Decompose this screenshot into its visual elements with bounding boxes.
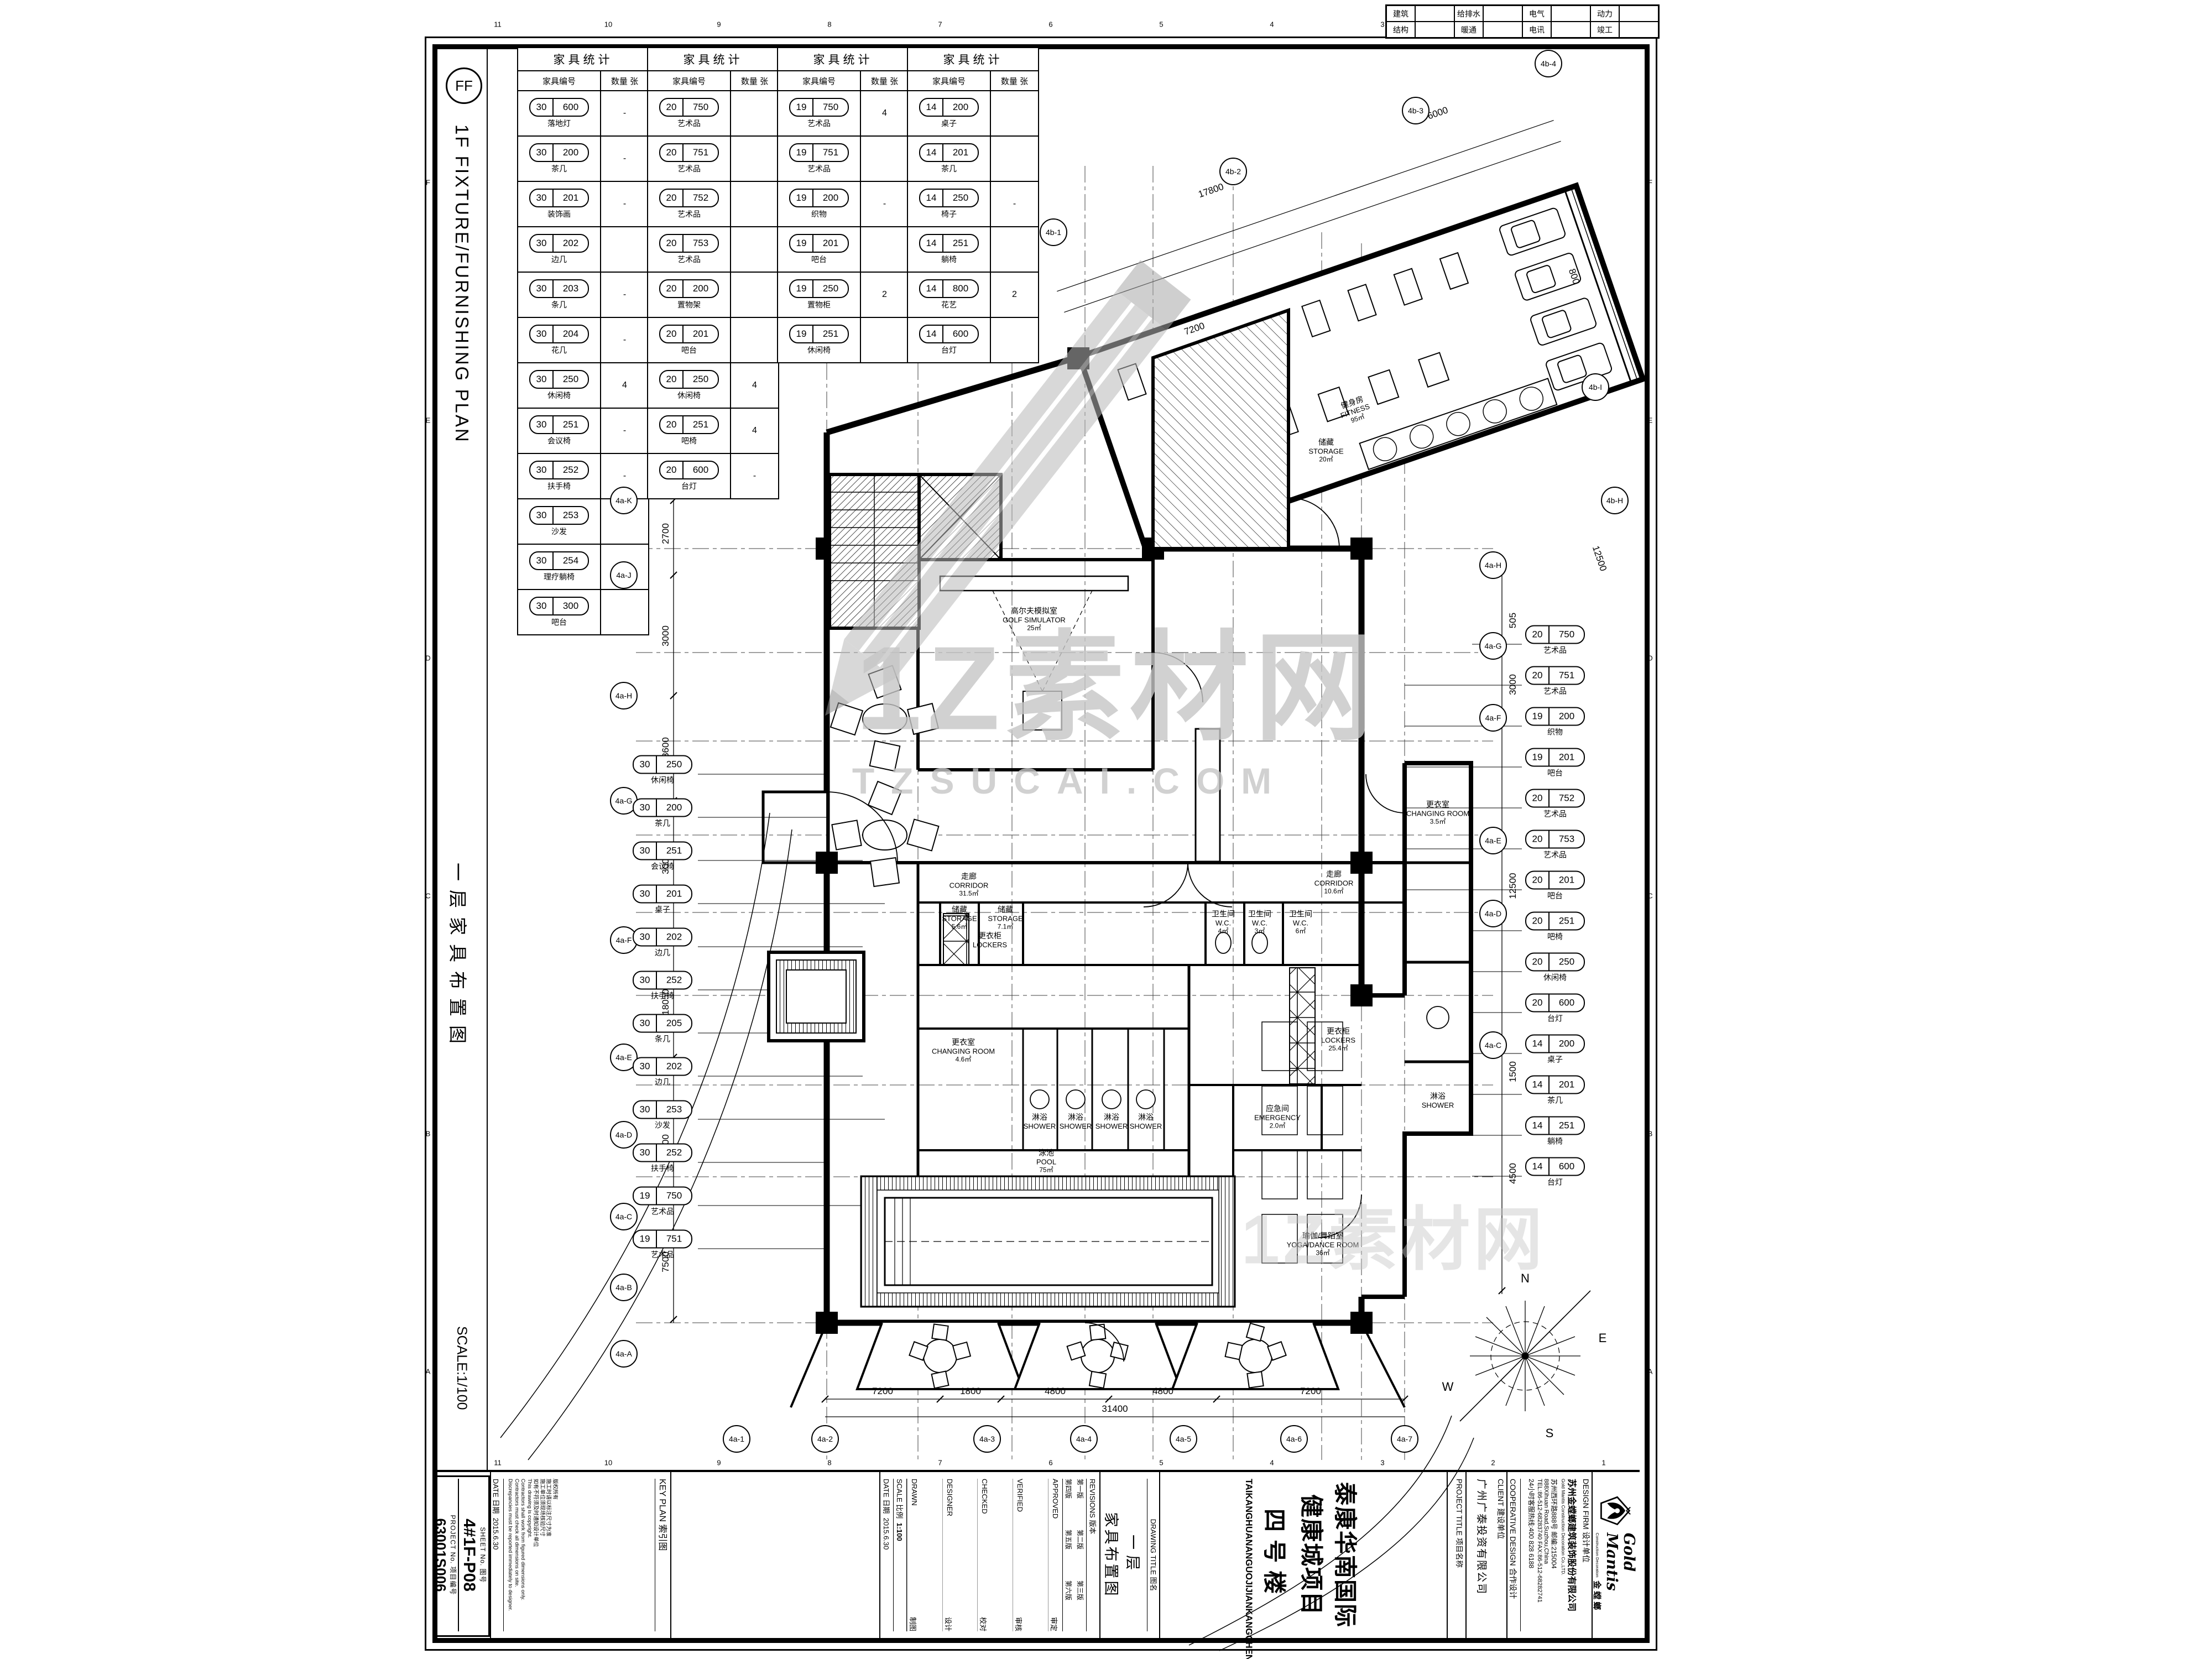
room-label-cn: 淋浴 (1130, 1113, 1162, 1122)
furniture-tag-code-a: 30 (634, 1145, 657, 1161)
furniture-tag-code-a: 14 (1526, 1118, 1550, 1134)
furniture-tag-code-a: 20 (1526, 667, 1550, 684)
dimension-text: 4500 (1507, 1163, 1519, 1184)
furniture-tag-code-a: 19 (1526, 708, 1550, 725)
furniture-tag-label: 扶手椅 (633, 1163, 692, 1174)
furniture-code-a: 20 (660, 280, 684, 297)
furniture-code-pill: 20251 (659, 415, 719, 434)
furniture-code-pill: 19251 (789, 325, 849, 343)
furniture-item-label: 条几 (551, 299, 567, 310)
furniture-code-a: 19 (790, 190, 813, 206)
furniture-qty-cell: - (601, 182, 648, 226)
coord-cell-label: 电讯 (1522, 22, 1551, 38)
furniture-code-a: 14 (920, 235, 943, 252)
furniture-code-pill: 30251 (529, 415, 589, 434)
furniture-tag-code-a: 20 (1526, 872, 1550, 889)
furniture-code-a: 20 (660, 462, 684, 478)
furniture-table-row: 30250休闲椅4 (518, 363, 648, 409)
room-label-en: SHOWER (1422, 1101, 1454, 1110)
room-label-en: EMERGENCY (1254, 1113, 1301, 1122)
furniture-item-label: 台灯 (941, 345, 957, 356)
furniture-table-row: 30201装饰画- (518, 182, 648, 227)
furniture-table-row: 19751艺术品 (778, 137, 908, 182)
furniture-tag-pill: 20201 (1525, 871, 1585, 890)
furniture-tag-code-a: 20 (1526, 954, 1550, 971)
room-label: 走廊CORRIDOR10.6㎡ (1314, 870, 1354, 896)
coord-cell-value (1619, 22, 1658, 38)
furniture-code-a: 19 (790, 235, 813, 252)
furniture-qty-cell: - (601, 318, 648, 362)
furniture-tag-code-b: 750 (657, 1188, 691, 1204)
furniture-code-a: 30 (530, 507, 554, 524)
room-label: 储藏STORAGE5.6㎡ (942, 905, 977, 931)
furniture-tag-pill: 14600 (1525, 1157, 1585, 1176)
furniture-item-cell: 14251躺椅 (908, 227, 991, 272)
grid-bubble: 4a-5 (1170, 1425, 1197, 1453)
furniture-table-row: 20750艺术品 (648, 91, 778, 137)
dimension-text: 12500 (1507, 873, 1519, 899)
furniture-item-label: 艺术品 (807, 118, 831, 129)
furniture-code-b: 251 (684, 416, 718, 433)
room-label-en: W.C. (1212, 919, 1235, 927)
furniture-table-col2-header: 数量 张 (991, 71, 1038, 90)
furniture-code-a: 30 (530, 598, 554, 614)
furniture-code-b: 253 (554, 507, 588, 524)
furniture-table-title: 家具统计 (908, 48, 1038, 71)
furniture-code-a: 30 (530, 462, 554, 478)
furniture-table-col1-header: 家具编号 (518, 71, 601, 90)
furniture-tag-label: 艺术品 (1525, 686, 1585, 697)
furniture-tag-label: 吧台 (1525, 890, 1585, 901)
pool (862, 1177, 1234, 1306)
room-label-cn: 淋浴 (1060, 1113, 1092, 1122)
room-label-en: STORAGE (1308, 447, 1343, 456)
furniture-tag-label: 扶手椅 (633, 990, 692, 1001)
room-label: 泳池POOL75㎡ (1036, 1149, 1056, 1175)
furniture-qty-cell (731, 227, 778, 272)
room-label: 卫生间W.C.3㎡ (1248, 910, 1271, 936)
furniture-item-label: 花艺 (941, 299, 957, 310)
golf-simulator-room (940, 576, 1128, 730)
furniture-code-a: 20 (660, 235, 684, 252)
coord-cell-value (1551, 22, 1590, 38)
furniture-item-cell: 20750艺术品 (648, 91, 731, 135)
furniture-item-label: 休闲椅 (677, 390, 701, 401)
furniture-tag-code-a: 19 (1526, 749, 1550, 766)
furniture-item-label: 艺术品 (677, 118, 701, 129)
furniture-qty-cell (731, 91, 778, 135)
furniture-tag: 30202边几 (633, 1057, 692, 1088)
furniture-code-b: 201 (943, 144, 978, 161)
furniture-code-pill: 30252 (529, 461, 589, 479)
furniture-item-cell: 30600落地灯 (518, 91, 601, 135)
furniture-table-col2-header: 数量 张 (731, 71, 778, 90)
furniture-tag-label: 边几 (633, 947, 692, 958)
furniture-table-row: 30200茶几- (518, 137, 648, 182)
room-label-cn: 泳池 (1036, 1149, 1056, 1158)
furniture-item-cell: 20753艺术品 (648, 227, 731, 272)
furniture-code-a: 20 (660, 416, 684, 433)
furniture-tag-code-b: 201 (657, 886, 691, 902)
furniture-tag-code-b: 752 (1550, 790, 1584, 807)
furniture-item-cell: 30300吧台 (518, 590, 601, 634)
furniture-tag-code-b: 252 (657, 1145, 691, 1161)
furniture-table-title: 家具统计 (518, 48, 648, 71)
furniture-tag-code-a: 30 (634, 929, 657, 946)
furniture-code-pill: 20200 (659, 279, 719, 298)
dimension-text: 3000 (1507, 674, 1519, 695)
furniture-item-cell: 20251吧椅 (648, 409, 731, 453)
coord-cell-value (1551, 6, 1590, 22)
coord-cell-value (1415, 6, 1454, 22)
room-label-en: W.C. (1248, 919, 1271, 927)
furniture-table-row: 30202边几 (518, 227, 648, 273)
furniture-tag-code-a: 14 (1526, 1159, 1550, 1175)
furniture-table-row: 19201吧台 (778, 227, 908, 273)
grid-bubble: 4a-3 (973, 1425, 1001, 1453)
room-label: 淋浴SHOWER (1422, 1092, 1454, 1109)
furniture-table-col2-header: 数量 张 (601, 71, 648, 90)
furniture-tag-pill: 20753 (1525, 830, 1585, 849)
dimension-text: 31400 (1102, 1404, 1128, 1415)
room-label-area: 3.5㎡ (1406, 818, 1469, 826)
furniture-item-label: 椅子 (941, 208, 957, 220)
coord-cell-label: 电气 (1522, 6, 1551, 22)
room-label: 淋浴SHOWER (1130, 1113, 1162, 1130)
dimension-text: 7200 (1300, 1386, 1321, 1397)
room-label-cn: 卫生间 (1289, 910, 1312, 919)
furniture-table-col1-header: 家具编号 (908, 71, 991, 90)
furniture-code-b: 250 (813, 280, 848, 297)
furniture-code-pill: 14200 (919, 98, 979, 117)
furniture-item-cell: 14250椅子 (908, 182, 991, 226)
furniture-tag-pill: 20250 (1525, 953, 1585, 972)
room-label: 储藏STORAGE20㎡ (1308, 438, 1343, 464)
furniture-item-cell: 30252扶手椅 (518, 454, 601, 498)
furniture-code-pill: 14201 (919, 143, 979, 162)
coord-cell-value (1483, 6, 1522, 22)
furniture-code-pill: 30203 (529, 279, 589, 298)
furniture-code-pill: 20750 (659, 98, 719, 117)
furniture-qty-cell: 2 (991, 273, 1038, 317)
furniture-code-pill: 19751 (789, 143, 849, 162)
furniture-qty-cell (861, 137, 908, 181)
furniture-tag-code-a: 20 (1526, 995, 1550, 1011)
furniture-item-label: 理疗躺椅 (544, 571, 575, 582)
furniture-table-row: 30203条几- (518, 273, 648, 318)
dimension-text: 1500 (1507, 1061, 1519, 1082)
furniture-code-b: 250 (554, 371, 588, 388)
dimension-text: 4800 (1045, 1386, 1066, 1397)
room-label-cn: 瑜伽/舞蹈室 (1287, 1232, 1359, 1241)
room-label-area: 20㎡ (1308, 456, 1343, 463)
room-label-area: 75㎡ (1036, 1166, 1056, 1174)
room-label: 走廊CORRIDOR31.5㎡ (950, 872, 989, 898)
furniture-code-b: 750 (813, 99, 848, 116)
furniture-tag: 20201吧台 (1525, 871, 1585, 901)
furniture-item-label: 艺术品 (677, 208, 701, 220)
furniture-qty-cell (991, 91, 1038, 135)
furniture-code-b: 750 (684, 99, 718, 116)
furniture-qty-cell (601, 590, 648, 634)
furniture-table-col1-header: 家具编号 (778, 71, 861, 90)
room-label-en: SHOWER (1060, 1122, 1092, 1131)
furniture-tag-code-b: 753 (1550, 831, 1584, 848)
furniture-code-a: 30 (530, 416, 554, 433)
furniture-qty-cell (861, 227, 908, 272)
room-label-cn: 储藏 (942, 905, 977, 915)
grid-bubble: 4a-E (1479, 827, 1507, 854)
furniture-code-a: 20 (660, 190, 684, 206)
furniture-qty-cell: - (601, 91, 648, 135)
room-label-en: YOGA/DANCE ROOM (1287, 1240, 1359, 1249)
compass-letter: S (1546, 1426, 1554, 1441)
furniture-tag-label: 艺术品 (633, 1206, 692, 1217)
furniture-code-a: 19 (790, 280, 813, 297)
furniture-tag-code-a: 20 (1526, 790, 1550, 807)
grid-bubble: 4a-A (610, 1340, 638, 1368)
furniture-tag-label: 吧台 (1525, 768, 1585, 779)
furniture-code-b: 251 (943, 235, 978, 252)
furniture-table-title: 家具统计 (778, 48, 908, 71)
furniture-tag-code-b: 200 (1550, 708, 1584, 725)
room-label-en: W.C. (1289, 919, 1312, 927)
furniture-item-label: 休闲椅 (807, 345, 831, 356)
room-label-cn: 更衣柜 (1321, 1027, 1355, 1036)
furniture-table-row: 20251吧椅4 (648, 409, 778, 454)
furniture-table: 家具统计家具编号数量 张19750艺术品419751艺术品19200织物-192… (777, 47, 909, 363)
furniture-code-pill: 20751 (659, 143, 719, 162)
furniture-tag-code-b: 200 (1550, 1036, 1584, 1052)
room-label-area: 25㎡ (1003, 624, 1066, 632)
room-label: 高尔夫模拟室GOLF SIMULATOR25㎡ (1003, 607, 1066, 633)
room-label-cn: 储藏 (988, 905, 1022, 915)
furniture-tag-code-a: 14 (1526, 1036, 1550, 1052)
furniture-code-pill: 19201 (789, 234, 849, 253)
furniture-tag-code-a: 19 (634, 1231, 657, 1248)
furniture-qty-cell (731, 182, 778, 226)
furniture-qty-cell (601, 227, 648, 272)
furniture-code-pill: 30200 (529, 143, 589, 162)
furniture-table-row: 19251休闲椅 (778, 318, 908, 362)
furniture-code-pill: 20753 (659, 234, 719, 253)
furniture-table-row: 14201茶几 (908, 137, 1038, 182)
furniture-item-cell: 19251休闲椅 (778, 318, 861, 362)
furniture-table-col2-header: 数量 张 (861, 71, 908, 90)
room-label-cn: 淋浴 (1024, 1113, 1056, 1122)
coord-cell-label: 给排水 (1454, 6, 1483, 22)
furniture-item-cell: 20751艺术品 (648, 137, 731, 181)
furniture-item-label: 吧台 (681, 345, 697, 356)
furniture-item-cell: 20250休闲椅 (648, 363, 731, 408)
furniture-code-b: 201 (813, 235, 848, 252)
furniture-code-b: 200 (943, 99, 978, 116)
furniture-tag-code-a: 14 (1526, 1077, 1550, 1093)
furniture-tag-label: 台灯 (1525, 1177, 1585, 1188)
furniture-code-pill: 14800 (919, 279, 979, 298)
furniture-qty-cell: - (601, 273, 648, 317)
furniture-code-b: 751 (813, 144, 848, 161)
furniture-tag-label: 艺术品 (1525, 808, 1585, 820)
furniture-item-cell: 14800花艺 (908, 273, 991, 317)
furniture-tag: 30252扶手椅 (633, 1144, 692, 1174)
furniture-table-row: 20200置物架 (648, 273, 778, 318)
furniture-tag-pill: 30202 (633, 1057, 692, 1076)
furniture-item-label: 吧椅 (681, 435, 697, 446)
furniture-item-label: 边几 (551, 254, 567, 265)
furniture-qty-cell: 4 (861, 91, 908, 135)
furniture-code-a: 14 (920, 99, 943, 116)
furniture-code-b: 200 (684, 280, 718, 297)
furniture-tag-code-b: 200 (657, 800, 691, 816)
furniture-tag-label: 艺术品 (1525, 849, 1585, 860)
furniture-tag-label: 茶几 (633, 818, 692, 829)
furniture-tag: 30251会议椅 (633, 842, 692, 872)
furniture-code-b: 752 (684, 190, 718, 206)
grid-bubble: 4a-C (1479, 1031, 1507, 1059)
furniture-code-pill: 14600 (919, 325, 979, 343)
furniture-tag: 30201桌子 (633, 885, 692, 915)
furniture-item-cell: 30250休闲椅 (518, 363, 601, 408)
grid-bubble: 4a-B (610, 1274, 638, 1301)
furniture-item-label: 休闲椅 (547, 390, 571, 401)
room-label: 淋浴SHOWER (1095, 1113, 1128, 1130)
furniture-code-a: 19 (790, 144, 813, 161)
grid-bubble: 4a-2 (811, 1425, 839, 1453)
furniture-item-label: 茶几 (941, 163, 957, 174)
furniture-item-cell: 20752艺术品 (648, 182, 731, 226)
furniture-item-cell: 30204花几 (518, 318, 601, 362)
furniture-item-cell: 30254理疗躺椅 (518, 545, 601, 589)
furniture-code-a: 14 (920, 190, 943, 206)
furniture-tag: 20750艺术品 (1525, 625, 1585, 656)
lounge-seating (831, 666, 1220, 886)
furniture-code-pill: 14250 (919, 189, 979, 207)
furniture-code-a: 20 (660, 99, 684, 116)
furniture-item-label: 吧台 (811, 254, 827, 265)
grid-bubble: 4a-K (610, 487, 638, 514)
furniture-tag-code-a: 30 (634, 1102, 657, 1118)
furniture-qty-cell: 4 (731, 409, 778, 453)
furniture-tag: 20250休闲椅 (1525, 953, 1585, 983)
furniture-tag-pill: 20251 (1525, 912, 1585, 931)
furniture-table-row: 30251会议椅- (518, 409, 648, 454)
furniture-item-cell: 30200茶几 (518, 137, 601, 181)
furniture-tag-pill: 30251 (633, 842, 692, 860)
furniture-qty-cell: 4 (601, 363, 648, 408)
lockers-and-fixtures (943, 914, 1449, 1109)
room-label-cn: 淋浴 (1422, 1092, 1454, 1101)
furniture-code-b: 202 (554, 235, 588, 252)
furniture-code-a: 19 (790, 99, 813, 116)
furniture-table-row: 20250休闲椅4 (648, 363, 778, 409)
room-label-area: 5.6㎡ (942, 923, 977, 931)
furniture-code-b: 600 (684, 462, 718, 478)
furniture-tag-pill: 30201 (633, 885, 692, 904)
grid-bubble: 4a-H (1479, 551, 1507, 579)
furniture-qty-cell (731, 318, 778, 362)
furniture-tag: 30205条几 (633, 1014, 692, 1045)
furniture-table-row: 19200织物- (778, 182, 908, 227)
coord-cell-label: 建筑 (1386, 6, 1415, 22)
furniture-code-b: 200 (813, 190, 848, 206)
furniture-table-row: 20752艺术品 (648, 182, 778, 227)
furniture-qty-cell: - (601, 409, 648, 453)
furniture-item-cell: 19201吧台 (778, 227, 861, 272)
room-label: 更衣室CHANGING ROOM3.5㎡ (1406, 800, 1469, 826)
furniture-tag-code-a: 30 (634, 757, 657, 773)
furniture-tag-label: 休闲椅 (633, 775, 692, 786)
furniture-code-b: 254 (554, 552, 588, 569)
furniture-item-cell: 19200织物 (778, 182, 861, 226)
furniture-tag: 19751艺术品 (633, 1230, 692, 1260)
furniture-tag: 30200茶几 (633, 799, 692, 829)
furniture-code-b: 251 (813, 326, 848, 342)
grid-bubble: 4b-4 (1535, 50, 1562, 77)
furniture-tag-code-b: 252 (657, 972, 691, 989)
furniture-item-label: 置物架 (677, 299, 701, 310)
furniture-table-row: 20751艺术品 (648, 137, 778, 182)
room-label-area: 3㎡ (1248, 927, 1271, 935)
furniture-tag-pill: 30200 (633, 799, 692, 817)
furniture-code-b: 600 (943, 326, 978, 342)
grid-bubble: 4a-F (1479, 704, 1507, 732)
furniture-table-row: 30300吧台 (518, 590, 648, 634)
furniture-item-label: 会议椅 (547, 435, 571, 446)
coord-cell-value (1619, 6, 1658, 22)
furniture-item-label: 吧台 (551, 617, 567, 628)
furniture-tag: 30252扶手椅 (633, 971, 692, 1001)
grid-bubble: 4a-4 (1070, 1425, 1098, 1453)
furniture-tag-label: 休闲椅 (1525, 972, 1585, 983)
furniture-tag-code-b: 600 (1550, 1159, 1584, 1175)
room-label-cn: 卫生间 (1248, 910, 1271, 919)
room-label-area: 4㎡ (1212, 927, 1235, 935)
room-label-cn: 走廊 (1314, 870, 1354, 879)
furniture-item-cell: 19250置物柜 (778, 273, 861, 317)
room-label-en: STORAGE (988, 914, 1022, 923)
room-label-cn: 高尔夫模拟室 (1003, 607, 1066, 616)
furniture-item-cell: 14201茶几 (908, 137, 991, 181)
furniture-item-cell: 20200置物架 (648, 273, 731, 317)
drawing-sheet-canvas: 建筑给排水电气动力结构暖通电讯竣工 1111101099887766554433… (0, 0, 2212, 1659)
furniture-item-cell: 19751艺术品 (778, 137, 861, 181)
furniture-tag: 30250休闲椅 (633, 755, 692, 786)
grid-bubble: 4b-I (1582, 373, 1609, 401)
furniture-qty-cell: - (731, 454, 778, 498)
furniture-code-pill: 19750 (789, 98, 849, 117)
room-label-area: 2.0㎡ (1254, 1122, 1301, 1130)
furniture-tag-pill: 30205 (633, 1014, 692, 1033)
room-label: 更衣柜LOCKERS (973, 931, 1007, 949)
coord-cell-value (1483, 22, 1522, 38)
furniture-table-row: 14251躺椅 (908, 227, 1038, 273)
room-label: 淋浴SHOWER (1024, 1113, 1056, 1130)
furniture-table-row: 20600台灯- (648, 454, 778, 498)
room-label: 卫生间W.C.6㎡ (1289, 910, 1312, 936)
furniture-item-label: 茶几 (551, 163, 567, 174)
coord-cell-label: 暖通 (1454, 22, 1483, 38)
furniture-qty-cell: 2 (861, 273, 908, 317)
furniture-code-b: 800 (943, 280, 978, 297)
furniture-table-title: 家具统计 (648, 48, 778, 71)
furniture-code-a: 14 (920, 326, 943, 342)
furniture-item-label: 台灯 (681, 481, 697, 492)
furniture-tag-label: 台灯 (1525, 1013, 1585, 1024)
room-label-en: SHOWER (1095, 1122, 1128, 1131)
furniture-tag-code-b: 202 (657, 1058, 691, 1075)
furniture-tag-code-b: 751 (1550, 667, 1584, 684)
